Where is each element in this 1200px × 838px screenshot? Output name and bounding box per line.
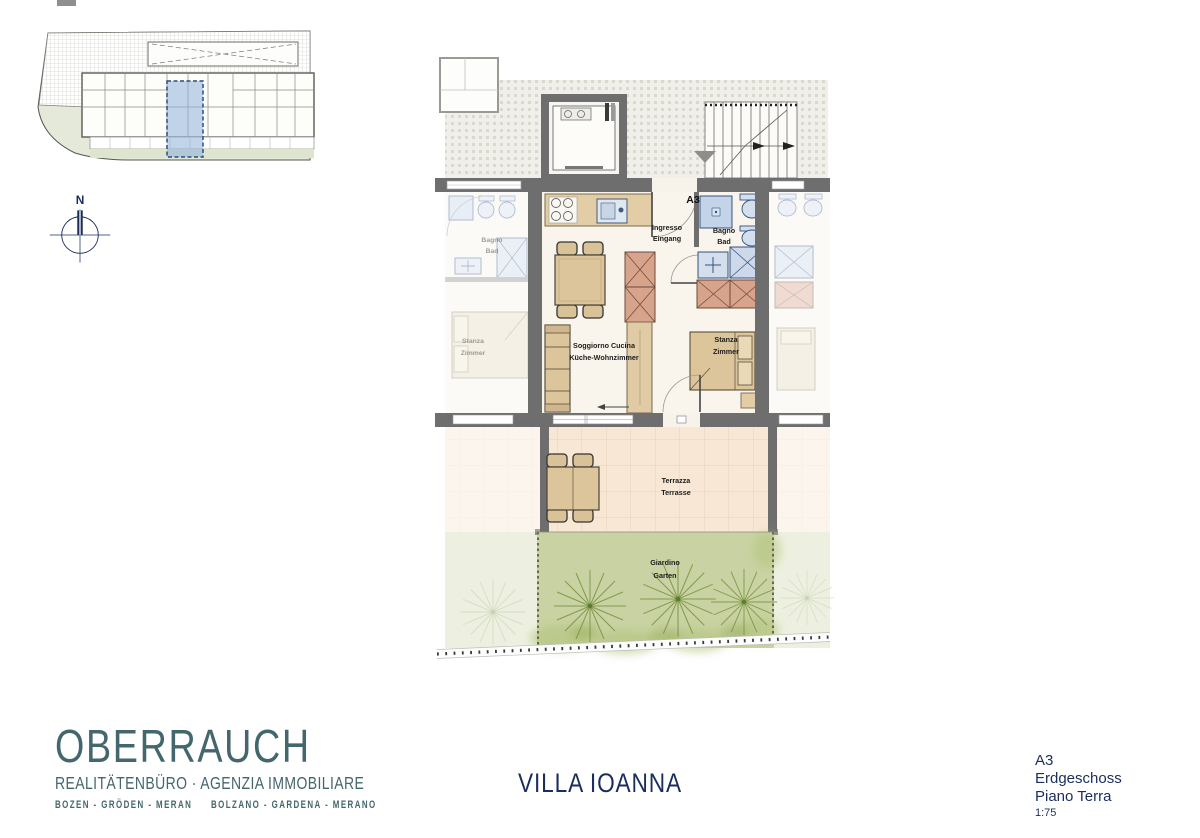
staircase <box>705 102 797 178</box>
room-label-terrace-de: Terrasse <box>661 488 690 497</box>
chair <box>547 509 567 522</box>
sheet-info: A3 Erdgeschoss Piano Terra 1:75 <box>1035 752 1122 820</box>
chair <box>557 305 577 318</box>
room-label-garden-de: Garten <box>653 571 676 580</box>
brand-name: OBERRAUCH <box>55 722 334 770</box>
north-arrow-icon: N <box>48 190 112 270</box>
agency-logo: OBERRAUCH REALITÄTENBÜRO · AGENZIA IMMOB… <box>55 722 395 811</box>
room-label-entrance-de: Eingang <box>653 234 681 243</box>
sheet-unit: A3 <box>1035 752 1122 770</box>
neighbor-label-bath-de: Bad <box>486 248 499 255</box>
project-title: VILLA IOANNA <box>499 768 701 799</box>
upper-structure <box>440 58 498 112</box>
brand-cities: BOZEN - GRÖDEN - MERAN BOLZANO - GARDENA… <box>55 799 300 811</box>
site-highlighted-unit <box>167 81 203 157</box>
sheet-scale: 1:75 <box>1035 806 1122 820</box>
unit-label: A3 <box>686 194 700 206</box>
brand-tagline: REALITÄTENBÜRO · AGENZIA IMMOBILIARE <box>55 773 327 794</box>
terrace-table-group <box>547 454 599 522</box>
wardrobe-column <box>625 252 655 322</box>
chair <box>573 454 593 467</box>
site-ramp <box>148 42 298 66</box>
chair <box>557 242 577 255</box>
chair <box>583 242 603 255</box>
wardrobe-cabinet <box>697 280 763 308</box>
room-label-entrance-it: Ingresso <box>652 223 683 232</box>
room-label-living-de: Küche-Wohnzimmer <box>569 353 639 362</box>
neighbor-label-bedroom-it: Stanza <box>462 338 484 345</box>
neighbor-apartment-right <box>769 192 830 413</box>
room-label-bath-de: Bad <box>717 237 731 246</box>
room-label-terrace-it: Terrazza <box>662 476 692 485</box>
sheet-floor-it: Piano Terra <box>1035 788 1122 806</box>
brand-cities-de: BOZEN - GRÖDEN - MERAN <box>55 799 192 811</box>
elevator <box>541 94 627 182</box>
sofa <box>545 325 570 412</box>
partition-wall <box>627 322 652 413</box>
neighbor-label-bedroom-de: Zimmer <box>461 350 486 357</box>
chair <box>573 509 593 522</box>
neighbor-label-bath-it: Bagno <box>481 237 502 244</box>
page-edge-mark <box>57 0 76 6</box>
room-label-living-it: Soggiorno Cucina <box>573 341 636 350</box>
room-label-bedroom-it: Stanza <box>714 335 738 344</box>
neighbor-apartment-left <box>445 192 528 413</box>
site-overview-plan <box>30 15 330 170</box>
room-label-bedroom-de: Zimmer <box>713 347 739 356</box>
entrance-opening <box>652 178 697 192</box>
sheet-floor-de: Erdgeschoss <box>1035 770 1122 788</box>
nightstand <box>741 393 757 408</box>
room-label-garden-it: Giardino <box>650 558 680 567</box>
north-label: N <box>76 193 85 207</box>
chair <box>547 454 567 467</box>
brand-cities-it: BOLZANO - GARDENA - MERANO <box>211 799 377 811</box>
kitchen-counter <box>545 194 652 226</box>
room-label-bath-it: Bagno <box>713 226 736 235</box>
chair <box>583 305 603 318</box>
dining-table <box>555 255 605 305</box>
main-floor-plan: A3 Ingresso Eingang Bagno Bad Soggiorno … <box>435 50 835 670</box>
